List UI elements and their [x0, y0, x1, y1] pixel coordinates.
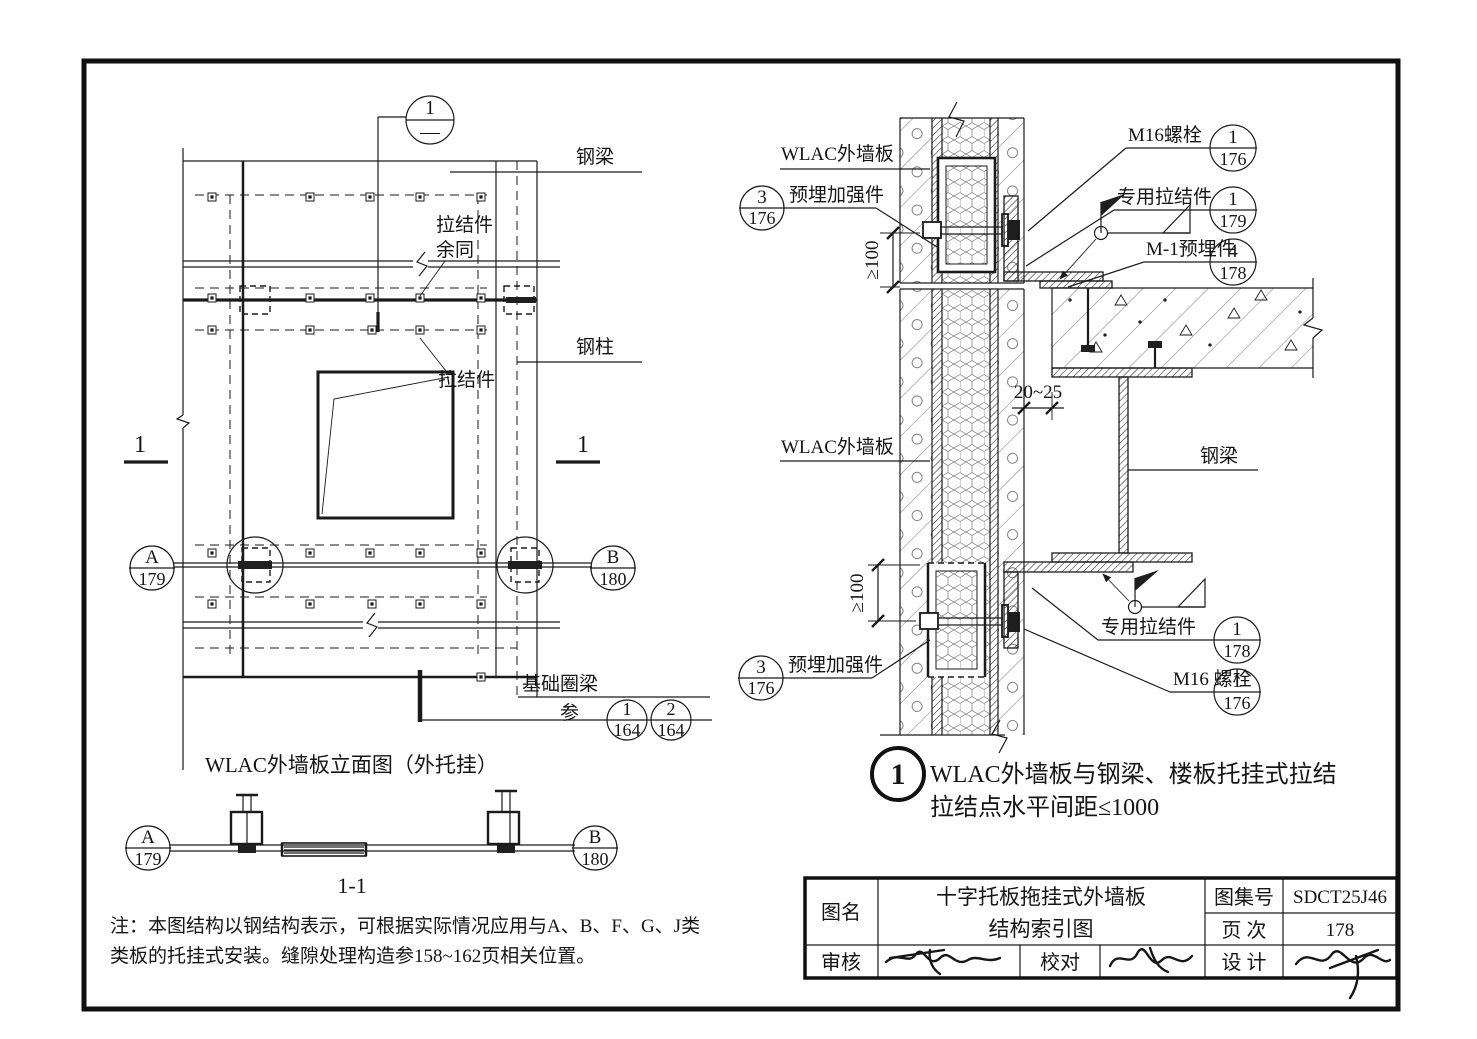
s11-axis-a-den: 179	[135, 849, 162, 869]
callout-embed-bot-num: 3	[756, 657, 766, 678]
callout-m16-bot-num: 1	[1232, 671, 1242, 692]
section-1-1: A 179 B 180 1-1	[125, 791, 618, 898]
label-m16-top: M16螺栓	[1128, 124, 1202, 146]
ref2-num: 2	[667, 699, 676, 719]
svg-text:20~25: 20~25	[1014, 382, 1062, 403]
signature-design	[1296, 950, 1390, 998]
callout-top-num: 1	[425, 97, 435, 119]
callout-m1-den: 178	[1220, 263, 1247, 283]
label-panel-mid: WLAC外墙板	[781, 436, 894, 458]
elevation-title: WLAC外墙板立面图（外托挂）	[205, 753, 498, 777]
tb-atlas-label: 图集号	[1214, 886, 1274, 909]
floor-slab	[1052, 288, 1313, 368]
axis-b-num: B	[607, 547, 620, 568]
section-title: 1-1	[337, 873, 366, 898]
tb-page-label: 页 次	[1222, 919, 1267, 942]
label-tie-b: 余同	[436, 239, 474, 261]
steel-beam-web	[1119, 377, 1128, 553]
tie-anchors	[208, 193, 485, 681]
ref2-den: 164	[658, 720, 685, 740]
tb-review-label: 审核	[821, 951, 861, 974]
label-steel-beam: 钢梁	[576, 146, 614, 168]
tb-design-label: 设 计	[1222, 951, 1267, 974]
tb-page-no: 178	[1326, 920, 1355, 941]
callout-tie-top-den: 179	[1220, 211, 1247, 231]
note-line1: 注：本图结构以钢结构表示，可根据实际情况应用与A、B、F、G、J类	[110, 915, 700, 937]
s11-axis-a-num: A	[141, 827, 155, 848]
callout-m16-top-num: 1	[1228, 127, 1238, 148]
drawing-page: 1 — 1 1 钢梁 拉结件 余同 拉结件 钢柱 基础圈梁 参 1 164 2 …	[0, 0, 1477, 1039]
caption-line1: WLAC外墙板与钢梁、楼板托挂式拉结	[930, 761, 1337, 788]
callout-embed-bot-den: 176	[748, 678, 775, 698]
drawing-canvas: 1 — 1 1 钢梁 拉结件 余同 拉结件 钢柱 基础圈梁 参 1 164 2 …	[0, 0, 1477, 1039]
tb-name-line2: 结构索引图	[989, 917, 1094, 941]
ref1-num: 1	[623, 699, 632, 719]
svg-text:≥100: ≥100	[862, 241, 883, 280]
steel-beam-top-flange	[1052, 368, 1192, 377]
steel-beam-bottom-flange	[1052, 553, 1192, 562]
tb-proof-label: 校对	[1040, 951, 1080, 974]
callout-m1-num: 4	[1228, 241, 1238, 262]
signature-proof	[1110, 948, 1192, 972]
label-foundation: 基础圈梁	[522, 673, 598, 695]
detail-drawing: ≥100 ≥100 20~25 WLAC外墙板 3 176 预埋加强件 WLAC…	[738, 98, 1337, 821]
tb-name-line1: 十字托板拖挂式外墙板	[936, 885, 1146, 909]
bolt-head-bottom	[920, 613, 938, 629]
caption-num: 1	[891, 758, 906, 791]
s11-axis-b-den: 180	[582, 849, 609, 869]
callout-embed-top-num: 3	[757, 187, 767, 208]
ref1-den: 164	[614, 720, 641, 740]
section-mark-right: 1	[577, 432, 589, 458]
label-beam: 钢梁	[1200, 445, 1238, 467]
label-embed-bot: 预埋加强件	[788, 654, 883, 676]
label-panel-top: WLAC外墙板	[781, 143, 894, 165]
callout-m16-bot-den: 176	[1224, 693, 1251, 713]
tb-name-label: 图名	[821, 901, 861, 924]
label-tie2: 拉结件	[438, 369, 495, 391]
axis-b-den: 180	[600, 569, 627, 589]
notes: 注：本图结构以钢结构表示，可根据实际情况应用与A、B、F、G、J类 类板的托挂式…	[110, 915, 700, 967]
title-block: 图名 十字托板拖挂式外墙板 结构索引图 图集号 SDCT25J46 页 次 17…	[805, 878, 1397, 998]
callout-top-den: —	[419, 121, 441, 143]
window-opening	[318, 372, 453, 518]
callout-tie-bot-den: 178	[1224, 641, 1251, 661]
svg-text:≥100: ≥100	[847, 574, 868, 613]
section-mark-left: 1	[134, 432, 146, 458]
angle-bracket-bottom	[1004, 562, 1133, 572]
s11-axis-b-num: B	[589, 827, 602, 848]
angle-bracket-top	[1004, 196, 1018, 281]
label-tie-bot: 专用拉结件	[1101, 616, 1196, 638]
label-m1-plate: M-1预埋件	[1146, 238, 1236, 260]
detail-caption: 1 WLAC外墙板与钢梁、楼板托挂式拉结 拉结点水平间距≤1000	[872, 748, 1337, 821]
label-embed-top: 预埋加强件	[789, 184, 884, 206]
note-line2: 类板的托挂式安装。缝隙处理构造参158~162页相关位置。	[110, 945, 595, 967]
weld-symbol-bottom	[1103, 570, 1205, 614]
tb-atlas-no: SDCT25J46	[1293, 887, 1387, 908]
label-steel-column: 钢柱	[576, 336, 614, 358]
callout-tie-bot-num: 1	[1232, 619, 1242, 640]
axis-a-den: 179	[139, 569, 166, 589]
bolt-head-top	[923, 222, 941, 238]
label-ref: 参	[560, 702, 579, 724]
label-tie-a: 拉结件	[436, 214, 493, 236]
label-tie-top: 专用拉结件	[1117, 186, 1212, 208]
elevation-drawing: 1 — 1 1 钢梁 拉结件 余同 拉结件 钢柱 基础圈梁 参 1 164 2 …	[124, 96, 712, 777]
callout-embed-top-den: 176	[749, 208, 776, 228]
callout-m16-top-den: 176	[1220, 149, 1247, 169]
axis-a-num: A	[145, 547, 159, 568]
caption-line2: 拉结点水平间距≤1000	[930, 794, 1159, 821]
callout-tie-top-num: 1	[1228, 189, 1238, 210]
